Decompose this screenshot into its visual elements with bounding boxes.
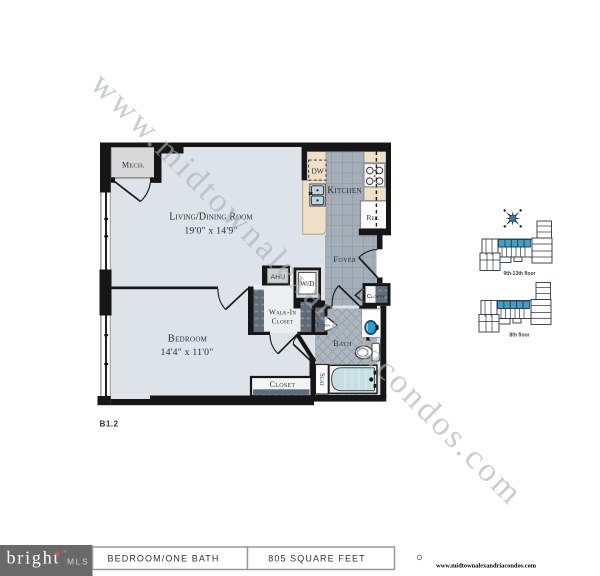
- svg-text:MLS: MLS: [67, 557, 89, 567]
- svg-text:Ref.: Ref.: [366, 213, 379, 222]
- svg-text:Mech.: Mech.: [122, 161, 145, 170]
- svg-text:Foyer: Foyer: [333, 254, 356, 264]
- svg-text:9th-13th floor: 9th-13th floor: [504, 271, 536, 277]
- svg-text:Kitchen: Kitchen: [327, 186, 362, 196]
- svg-text:B1.2: B1.2: [100, 420, 119, 429]
- svg-text:Closet: Closet: [367, 294, 386, 300]
- svg-text:Seat: Seat: [318, 373, 326, 386]
- svg-text:805 SQUARE FEET: 805 SQUARE FEET: [268, 554, 366, 564]
- svg-text:bright: bright: [7, 548, 61, 568]
- svg-text:TM: TM: [62, 550, 67, 554]
- svg-text:8th floor: 8th floor: [510, 333, 530, 339]
- svg-text:Closet: Closet: [270, 380, 296, 389]
- svg-text:DW: DW: [311, 167, 324, 176]
- svg-text:Walk-In: Walk-In: [269, 308, 297, 317]
- svg-text:Closet: Closet: [272, 317, 294, 326]
- svg-text:Bedroom: Bedroom: [168, 334, 208, 345]
- svg-text:BEDROOM/ONE BATH: BEDROOM/ONE BATH: [108, 554, 220, 564]
- svg-text:www.midtownalexandriacondos.co: www.midtownalexandriacondos.com: [436, 563, 537, 570]
- svg-text:14'4" x 11'0": 14'4" x 11'0": [161, 347, 214, 358]
